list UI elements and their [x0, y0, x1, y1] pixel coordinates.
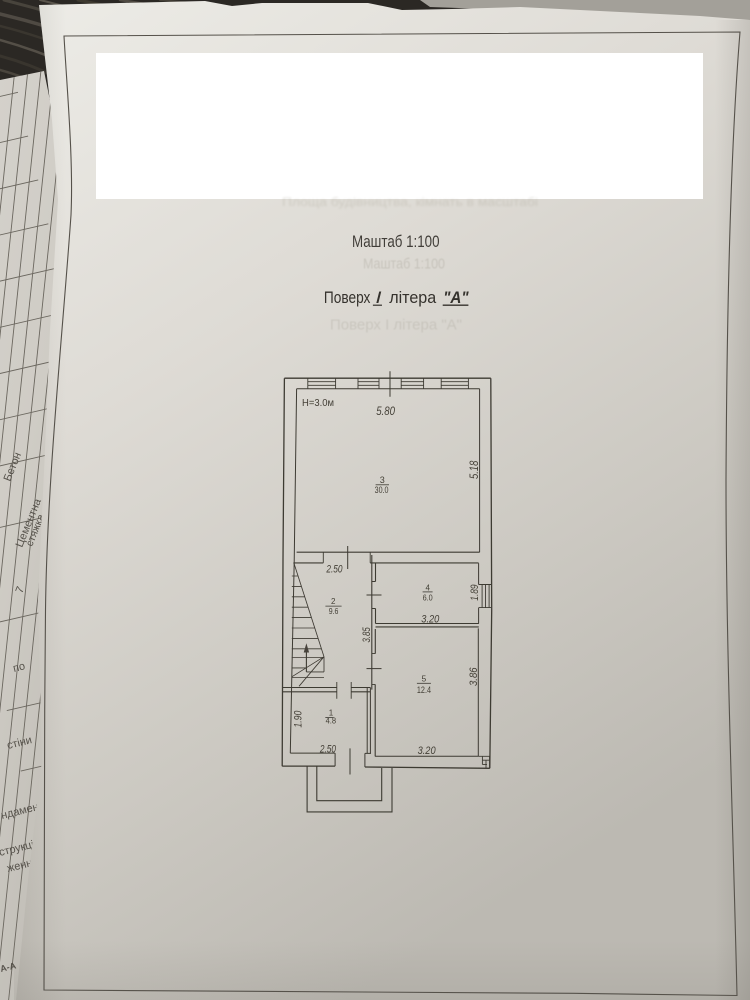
svg-text:30.0: 30.0: [375, 485, 389, 496]
svg-text:3.86: 3.86: [468, 667, 480, 686]
svg-text:12.4: 12.4: [417, 685, 431, 695]
svg-text:літера: літера: [389, 289, 437, 307]
svg-text:3.20: 3.20: [418, 745, 437, 757]
svg-text:Поверх І літера "А": Поверх І літера "А": [330, 317, 462, 334]
svg-text:3.20: 3.20: [421, 614, 440, 626]
svg-text:5.80: 5.80: [376, 404, 395, 418]
svg-text:2.50: 2.50: [319, 744, 337, 756]
svg-text:3: 3: [380, 475, 385, 485]
svg-text:6.0: 6.0: [423, 592, 433, 602]
svg-text:9.6: 9.6: [329, 606, 339, 616]
svg-text:Площа будівництва, кімнать в м: Площа будівництва, кімнать в масштабі: [282, 197, 538, 209]
svg-text:2.50: 2.50: [326, 564, 344, 576]
svg-text:1.89: 1.89: [469, 584, 481, 600]
svg-text:4.8: 4.8: [326, 716, 337, 726]
svg-text:"А": "А": [443, 289, 469, 307]
svg-text:4: 4: [426, 583, 431, 592]
svg-text:Маштаб 1:100: Маштаб 1:100: [363, 256, 445, 273]
svg-text:Н=3.0м: Н=3.0м: [302, 397, 334, 409]
svg-text:1.90: 1.90: [293, 710, 305, 728]
svg-text:Маштаб 1:100: Маштаб 1:100: [352, 232, 440, 251]
svg-text:І: І: [376, 289, 383, 307]
svg-text:2: 2: [331, 597, 336, 606]
svg-text:5.18: 5.18: [467, 460, 481, 479]
svg-text:5: 5: [422, 674, 427, 684]
svg-text:3.85: 3.85: [361, 627, 373, 643]
svg-text:Поверх: Поверх: [324, 289, 371, 307]
